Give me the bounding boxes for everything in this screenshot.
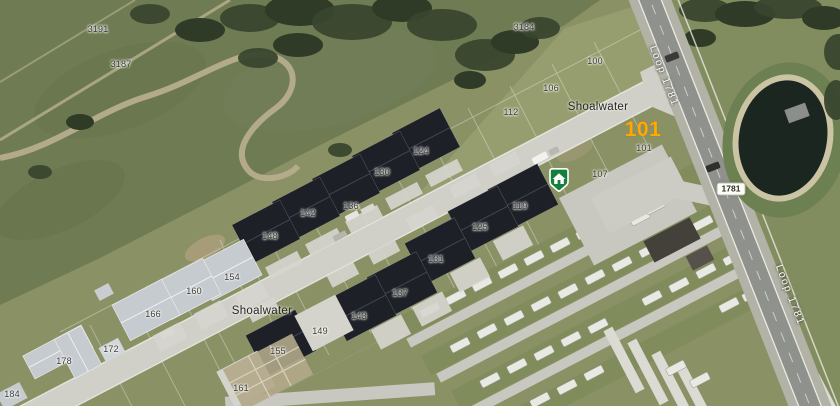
satellite-imagery [0, 0, 840, 406]
map-canvas[interactable]: 3191318731841001061121011071241301361421… [0, 0, 840, 406]
home-marker-icon[interactable] [547, 167, 571, 195]
